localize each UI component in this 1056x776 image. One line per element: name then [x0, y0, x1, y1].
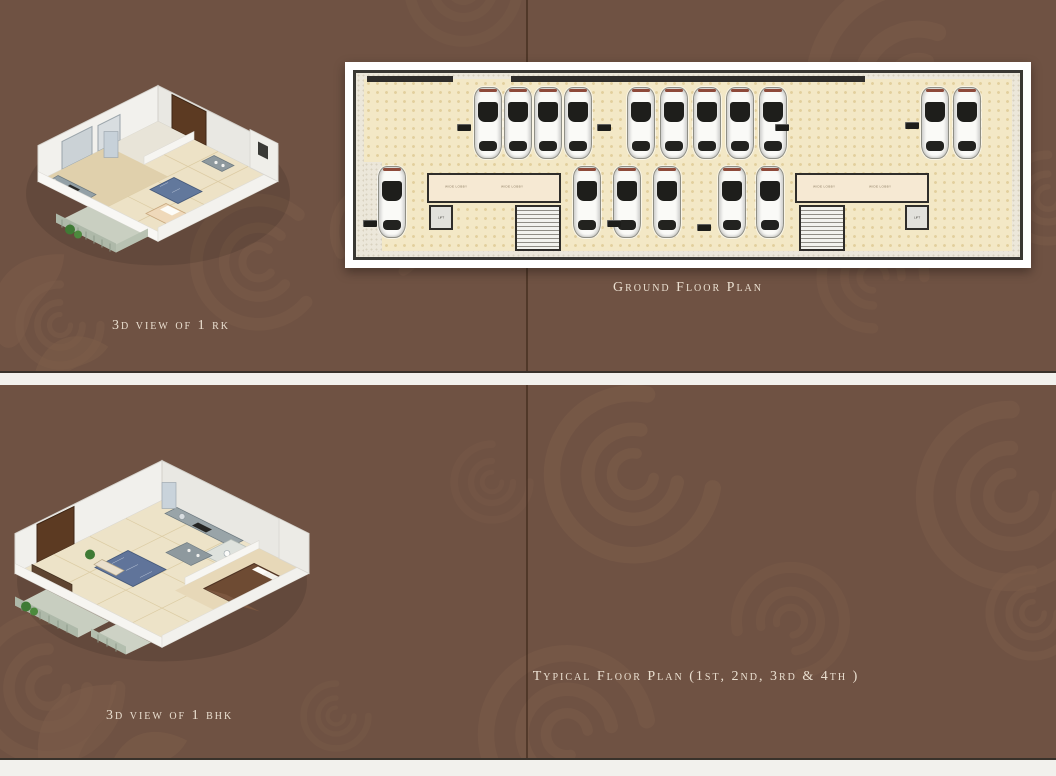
render-3d-1bhk [12, 418, 312, 710]
parked-car [693, 87, 721, 159]
ground-floor-plan: WIDE LOBBY WIDE LOBBY LIFT WIDE LOBBY WI… [345, 62, 1031, 268]
parked-car [759, 87, 787, 159]
bottom-panel: 3d view of 1 bhk KITCHENBATHW.C.LIVINGBE… [0, 385, 1056, 758]
bottom-strip [0, 758, 1056, 776]
parking-chip [607, 220, 621, 227]
parked-car [613, 166, 641, 238]
parked-car [534, 87, 562, 159]
gfp-dynamic [345, 62, 1031, 268]
parked-car [921, 87, 949, 159]
parking-chip [363, 220, 377, 227]
top-panel: 3d view of 1 rk WIDE LOBBY WIDE LOBBY LI… [0, 0, 1056, 371]
parking-chip [457, 124, 471, 131]
render-3d-1rk [18, 50, 298, 308]
parked-car [756, 166, 784, 238]
parked-car [953, 87, 981, 159]
parked-car [564, 87, 592, 159]
caption-ground-floor-plan: Ground Floor Plan [345, 280, 1031, 296]
parked-car [573, 166, 601, 238]
caption-3d-view-1rk: 3d view of 1 rk [112, 318, 230, 334]
parking-chip [697, 224, 711, 231]
parked-car [627, 87, 655, 159]
parking-chip [905, 122, 919, 129]
brochure-page: 3d view of 1 rk WIDE LOBBY WIDE LOBBY LI… [0, 0, 1056, 776]
parking-chip [775, 124, 789, 131]
caption-typical-floor-plan: Typical Floor Plan (1st, 2nd, 3rd & 4th … [356, 669, 1036, 685]
panel-divider [0, 371, 1056, 385]
parked-car [474, 87, 502, 159]
parked-car [660, 87, 688, 159]
parking-chip [597, 124, 611, 131]
parked-car [378, 166, 406, 238]
caption-3d-view-1bhk: 3d view of 1 bhk [106, 708, 233, 724]
fold-line [526, 385, 528, 758]
parked-car [653, 166, 681, 238]
parked-car [504, 87, 532, 159]
parked-car [718, 166, 746, 238]
parked-car [726, 87, 754, 159]
